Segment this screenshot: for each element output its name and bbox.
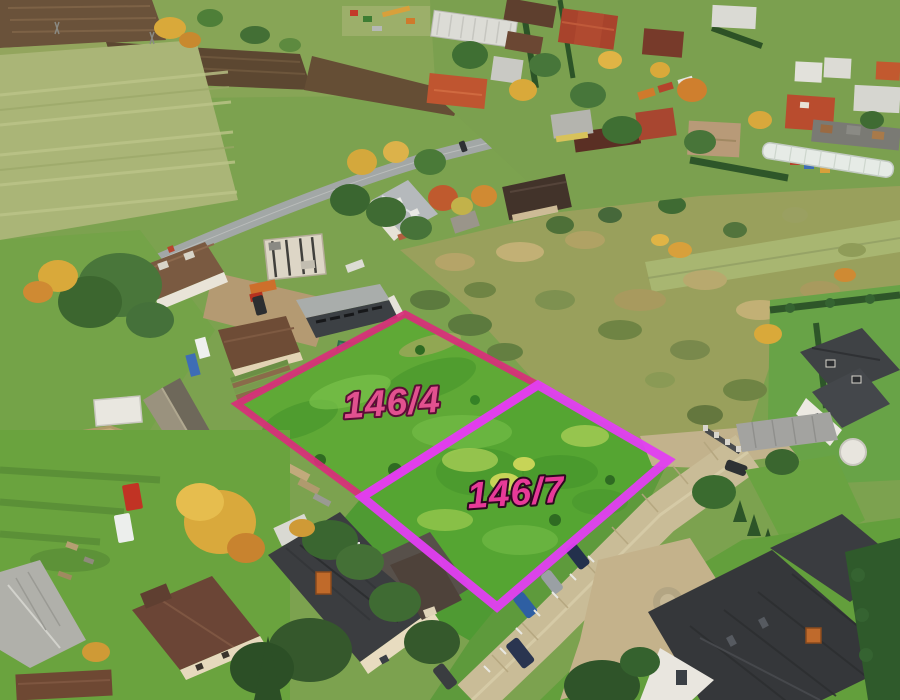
house-white bbox=[711, 5, 756, 29]
scene-svg: 146/4 146/7 bbox=[0, 0, 900, 700]
plot-label-146-4: 146/4 bbox=[342, 379, 442, 427]
aerial-photo: 146/4 146/7 bbox=[0, 0, 900, 700]
building-construction bbox=[264, 234, 326, 280]
orange-chimney bbox=[316, 572, 331, 594]
plot-label-146-7: 146/7 bbox=[466, 469, 568, 517]
white-shed bbox=[94, 396, 142, 426]
house-bottom-left bbox=[15, 670, 112, 700]
bay-window-tower bbox=[840, 439, 866, 465]
house-gray-roof-yellow-walls bbox=[551, 109, 594, 142]
house-maroon bbox=[642, 28, 684, 57]
house-orange-roof bbox=[427, 73, 488, 109]
